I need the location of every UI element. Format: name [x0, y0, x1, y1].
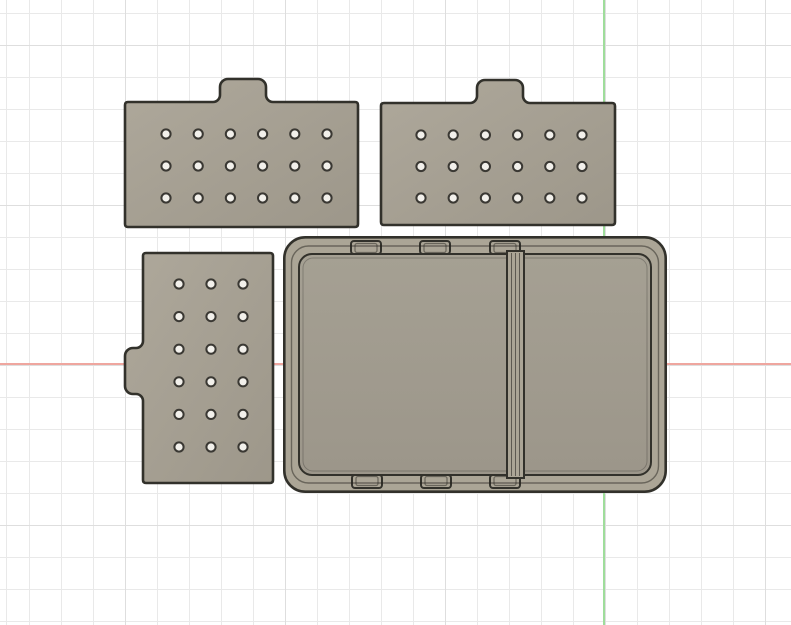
lid-plate-bottom-left[interactable]: [123, 251, 275, 485]
lid-plate-top-right[interactable]: [379, 78, 617, 227]
cad-viewport: [0, 0, 791, 625]
lid-plate-top-left[interactable]: [123, 77, 360, 229]
model-bodies: [0, 0, 791, 625]
divided-box[interactable]: [281, 234, 669, 495]
